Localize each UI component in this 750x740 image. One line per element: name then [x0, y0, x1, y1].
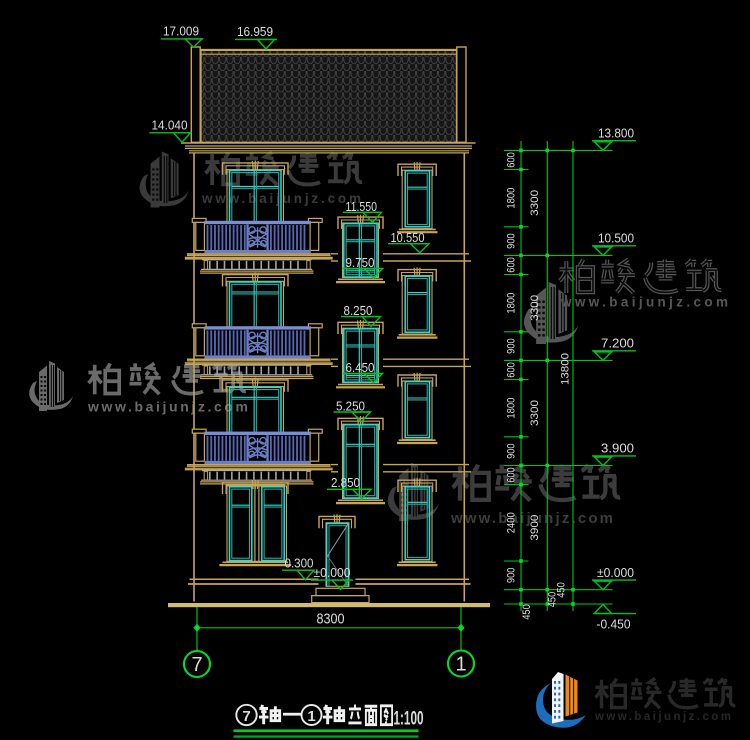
svg-text:600: 600: [505, 257, 517, 273]
svg-text:1: 1: [307, 708, 315, 725]
svg-text:11.550: 11.550: [346, 199, 378, 214]
svg-text:5.250: 5.250: [336, 399, 365, 414]
svg-text:1800: 1800: [505, 398, 517, 419]
svg-text:3300: 3300: [529, 190, 541, 216]
svg-text:7: 7: [242, 708, 250, 725]
svg-text:0.300: 0.300: [285, 556, 314, 571]
svg-text:7.200: 7.200: [601, 336, 634, 351]
svg-text:1: 1: [455, 654, 466, 676]
svg-text:600: 600: [505, 152, 517, 168]
svg-text:3300: 3300: [529, 400, 541, 426]
svg-text:13.800: 13.800: [598, 125, 634, 140]
svg-text:9.750: 9.750: [346, 255, 375, 270]
svg-text:1800: 1800: [505, 293, 517, 314]
svg-text:900: 900: [505, 568, 517, 584]
svg-text:3300: 3300: [529, 295, 541, 321]
svg-text:8300: 8300: [317, 612, 345, 628]
svg-text:16.959: 16.959: [237, 24, 273, 39]
svg-text:14.040: 14.040: [152, 118, 188, 133]
svg-text:±0.000: ±0.000: [314, 565, 351, 580]
svg-text:17.009: 17.009: [163, 24, 199, 39]
svg-text:8.250: 8.250: [344, 303, 373, 318]
svg-text:900: 900: [505, 338, 517, 354]
svg-text:1800: 1800: [505, 188, 517, 209]
svg-text:2400: 2400: [505, 512, 517, 533]
svg-text:2.850: 2.850: [331, 475, 360, 490]
svg-text:7: 7: [191, 654, 202, 676]
svg-text:600: 600: [505, 362, 517, 378]
svg-text:10.500: 10.500: [598, 231, 634, 246]
svg-text:-0.450: -0.450: [597, 617, 631, 632]
svg-text:13800: 13800: [560, 353, 572, 385]
svg-text:3900: 3900: [529, 515, 541, 541]
svg-text:900: 900: [505, 233, 517, 249]
svg-text:3.900: 3.900: [601, 441, 634, 456]
svg-text:900: 900: [505, 443, 517, 459]
svg-text:10.550: 10.550: [391, 230, 425, 245]
svg-text:450: 450: [556, 582, 568, 598]
svg-text:600: 600: [505, 467, 517, 483]
svg-text:450: 450: [521, 604, 533, 620]
svg-text:6.450: 6.450: [346, 360, 375, 375]
svg-text:1:100: 1:100: [394, 709, 424, 730]
svg-text:±0.000: ±0.000: [597, 565, 634, 580]
